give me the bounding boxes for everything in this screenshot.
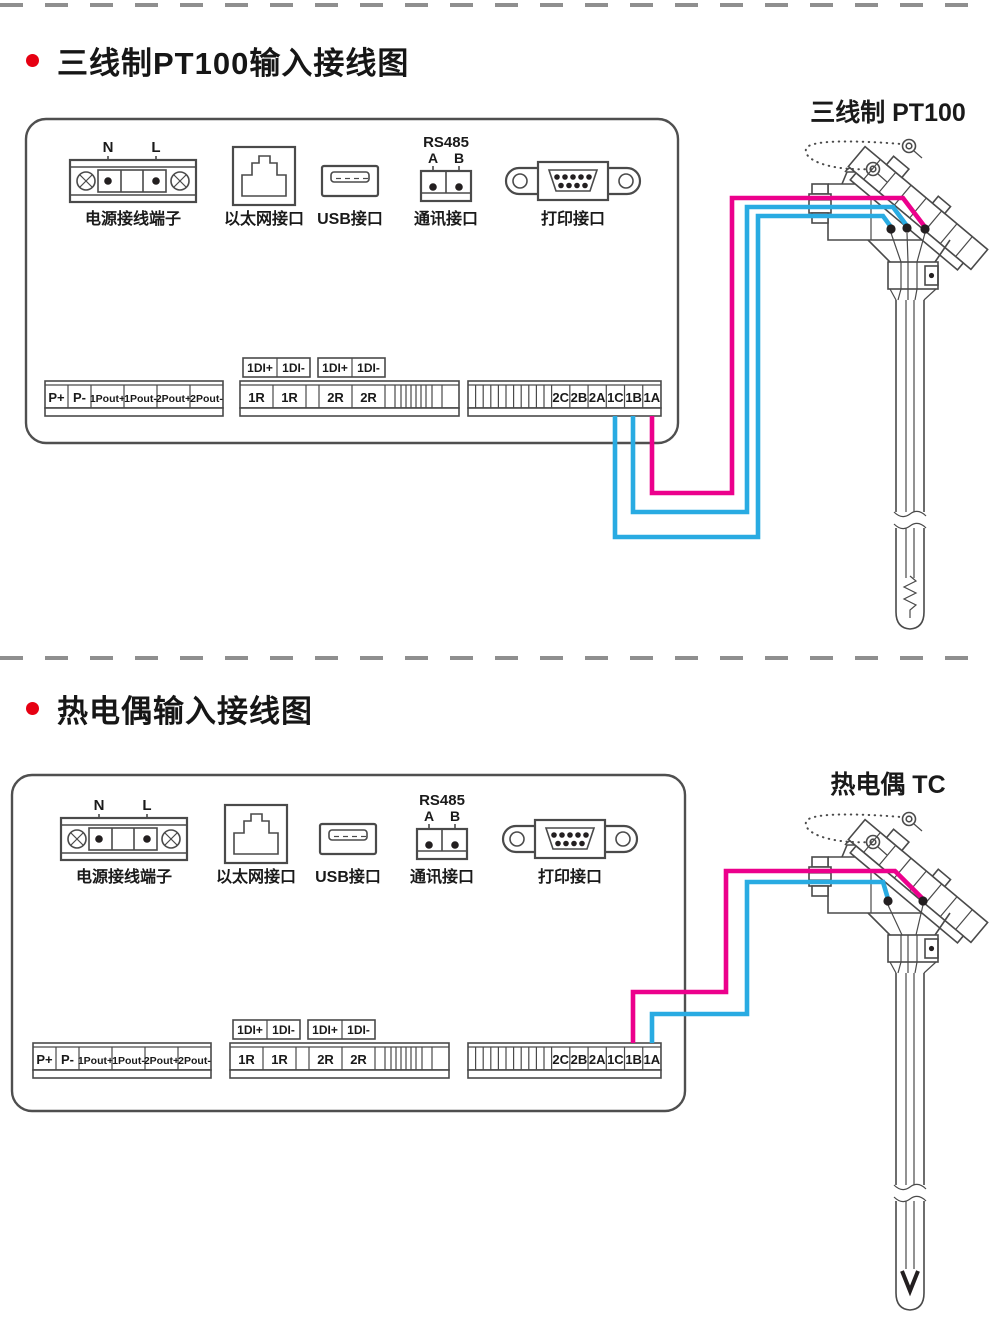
terminal-cell-label: 1R <box>248 390 265 405</box>
di-label: 1DI- <box>347 1023 370 1037</box>
analog-input-terminal-strip: 2C2B2A1C1B1A <box>468 381 661 416</box>
terminal-cell-label: 2B <box>571 390 588 405</box>
di-label-box: 1DI+1DI- <box>318 358 385 377</box>
terminal-cell-label: 1C <box>607 390 624 405</box>
wiring-diagram-canvas: NL电源接线端子以太网接口USB接口RS485AB通讯接口打印接口P+P-1Po… <box>0 0 990 1337</box>
terminal-cell-label: 2A <box>589 1052 606 1067</box>
di-label-box: 1DI+1DI- <box>243 358 310 377</box>
pin-label-b: B <box>450 808 460 824</box>
pin-label-a: A <box>424 808 434 824</box>
terminal-cell-label: 1C <box>607 1052 624 1067</box>
usb-port: USB接口 <box>317 166 383 228</box>
rs485-heading: RS485 <box>419 792 465 809</box>
terminal-cell-label: 2B <box>571 1052 588 1067</box>
port-caption: USB接口 <box>317 209 383 228</box>
terminal-cell-label: 1A <box>644 1052 661 1067</box>
sensor-terminal-dot <box>918 896 927 905</box>
rs485-port: RS485AB通讯接口 <box>410 792 474 886</box>
di-label: 1DI+ <box>237 1023 263 1037</box>
pin-label-l: L <box>142 797 151 814</box>
sensor-title: 热电偶 TC <box>830 771 945 799</box>
port-caption: 通讯接口 <box>410 867 474 886</box>
rs485-port: RS485AB通讯接口 <box>414 134 478 228</box>
sensor-title: 三线制 PT100 <box>810 98 966 127</box>
terminal-cell-label: 2Pout- <box>190 393 223 405</box>
usb-port: USB接口 <box>315 824 381 886</box>
terminal-cell-label: 1Pout- <box>124 393 157 405</box>
wire-blue-1a <box>652 882 888 1043</box>
temperature-sensor: 三线制 PT100 <box>806 98 990 629</box>
terminal-cell-label: 2Pout- <box>178 1055 211 1067</box>
port-caption: 打印接口 <box>538 867 602 886</box>
terminal-cell-label: P- <box>61 1052 74 1067</box>
sensor-terminal-dot <box>883 896 892 905</box>
temperature-sensor: 热电偶 TC <box>806 771 990 1310</box>
port-caption: 电源接线端子 <box>85 209 181 228</box>
port-caption: 以太网接口 <box>216 867 296 886</box>
terminal-cell-label: 1A <box>644 390 661 405</box>
terminal-cell-label: P+ <box>48 390 65 405</box>
terminal-cell-label: 2R <box>360 390 377 405</box>
tc-probe <box>894 973 926 1310</box>
terminal-cell-label: 1R <box>238 1052 255 1067</box>
di-label: 1DI- <box>357 361 380 375</box>
relay-terminal-strip: 1R1R2R2R <box>230 1043 449 1078</box>
relay-terminal-strip: 1R1R2R2R <box>240 381 459 416</box>
wiring-manual-page: 三线制PT100输入接线图 热电偶输入接线图 NL电源接线端子以太网接口USB接… <box>0 0 990 1337</box>
sensor-head <box>806 138 990 300</box>
sensor-terminal-dot <box>920 224 929 233</box>
terminal-cell-label: 2A <box>589 390 606 405</box>
port-caption: 打印接口 <box>541 209 605 228</box>
di-label: 1DI+ <box>322 361 348 375</box>
terminal-cell-label: 1Pout- <box>112 1055 145 1067</box>
terminal-cell-label: 2R <box>327 390 344 405</box>
pin-label-a: A <box>428 150 438 166</box>
terminal-cell-label: 1Pout+ <box>90 393 125 405</box>
port-caption: 以太网接口 <box>224 209 304 228</box>
di-label: 1DI+ <box>247 361 273 375</box>
terminal-cell-label: 1B <box>625 390 642 405</box>
sensor-terminal-dot <box>886 224 895 233</box>
port-caption: 电源接线端子 <box>76 867 172 886</box>
terminal-cell-label: 2R <box>350 1052 367 1067</box>
di-label: 1DI+ <box>312 1023 338 1037</box>
terminal-cell-label: 1B <box>625 1052 642 1067</box>
sensor-head <box>806 811 990 973</box>
analog-input-terminal-strip: 2C2B2A1C1B1A <box>468 1043 661 1078</box>
pin-label-b: B <box>454 150 464 166</box>
pin-label-l: L <box>151 139 160 156</box>
terminal-cell-label: 2Pout+ <box>144 1055 179 1067</box>
pin-label-n: N <box>103 139 114 156</box>
ethernet-port: 以太网接口 <box>216 805 296 886</box>
ethernet-port: 以太网接口 <box>224 147 304 228</box>
rs485-heading: RS485 <box>423 134 469 151</box>
port-caption: 通讯接口 <box>414 209 478 228</box>
pin-label-n: N <box>94 797 105 814</box>
sensor-terminal-dot <box>902 223 911 232</box>
di-label-box: 1DI+1DI- <box>233 1020 300 1039</box>
di-label-box: 1DI+1DI- <box>308 1020 375 1039</box>
wiring-section-tc: NL电源接线端子以太网接口USB接口RS485AB通讯接口打印接口P+P-1Po… <box>12 771 990 1310</box>
terminal-cell-label: P+ <box>36 1052 53 1067</box>
di-label: 1DI- <box>282 361 305 375</box>
terminal-cell-label: 2Pout+ <box>156 393 191 405</box>
terminal-cell-label: 1Pout+ <box>78 1055 113 1067</box>
terminal-cell-label: P- <box>73 390 86 405</box>
terminal-cell-label: 2C <box>552 1052 569 1067</box>
di-label: 1DI- <box>272 1023 295 1037</box>
pt100-probe <box>894 300 926 629</box>
power-output-terminal-strip: P+P-1Pout+1Pout-2Pout+2Pout- <box>33 1043 211 1078</box>
power-output-terminal-strip: P+P-1Pout+1Pout-2Pout+2Pout- <box>45 381 223 416</box>
terminal-cell-label: 1R <box>271 1052 288 1067</box>
wire-pink-1a <box>652 198 925 493</box>
terminal-cell-label: 1R <box>281 390 298 405</box>
terminal-cell-label: 2R <box>317 1052 334 1067</box>
terminal-cell-label: 2C <box>552 390 569 405</box>
port-caption: USB接口 <box>315 867 381 886</box>
wiring-section-pt100: NL电源接线端子以太网接口USB接口RS485AB通讯接口打印接口P+P-1Po… <box>26 98 990 629</box>
